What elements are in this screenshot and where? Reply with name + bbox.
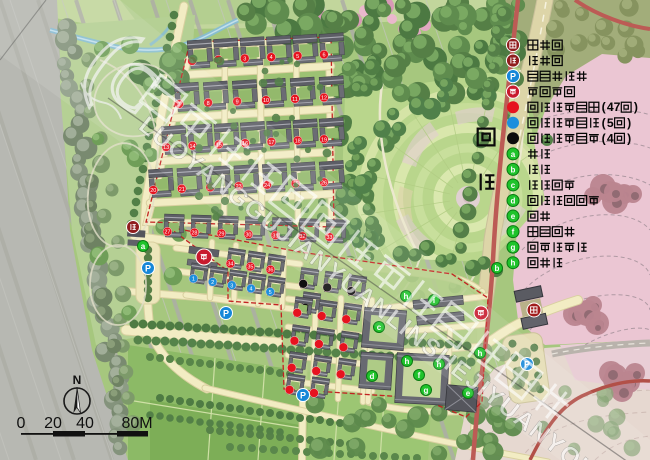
- svg-text:g: g: [511, 243, 516, 252]
- svg-text:P: P: [223, 308, 229, 318]
- svg-text:f: f: [512, 228, 515, 237]
- svg-text:b: b: [511, 165, 516, 174]
- svg-text:12: 12: [321, 96, 327, 102]
- svg-text:N: N: [73, 373, 82, 387]
- svg-text:11: 11: [292, 97, 298, 103]
- svg-text:e: e: [511, 212, 516, 221]
- svg-text:40: 40: [76, 415, 94, 432]
- svg-text:a: a: [141, 242, 146, 251]
- svg-text:h: h: [405, 357, 410, 366]
- svg-text:): ): [634, 100, 638, 114]
- svg-text:d: d: [370, 372, 375, 381]
- svg-text:0: 0: [17, 415, 26, 432]
- svg-text:1: 1: [192, 277, 195, 283]
- svg-text:5: 5: [607, 116, 614, 130]
- svg-text:27: 27: [164, 230, 170, 236]
- svg-text:f: f: [418, 371, 421, 380]
- svg-text:): ): [627, 116, 631, 130]
- svg-text:10: 10: [263, 98, 269, 104]
- svg-text:7: 7: [614, 100, 621, 114]
- svg-text:4: 4: [249, 287, 252, 293]
- svg-text:20: 20: [44, 415, 62, 432]
- svg-text:18: 18: [295, 139, 301, 145]
- svg-text:P: P: [510, 72, 516, 82]
- svg-text:34: 34: [227, 262, 233, 268]
- svg-text:d: d: [511, 197, 516, 206]
- svg-text:2: 2: [211, 280, 214, 286]
- svg-text:g: g: [424, 386, 429, 395]
- svg-text:80M: 80M: [121, 415, 152, 432]
- svg-text:29: 29: [218, 232, 224, 238]
- svg-text:5: 5: [296, 54, 299, 60]
- svg-text:4: 4: [607, 131, 614, 145]
- svg-text:36: 36: [267, 268, 273, 274]
- svg-text:): ): [627, 131, 631, 145]
- svg-text:h: h: [511, 259, 516, 268]
- svg-text:3: 3: [243, 57, 246, 63]
- svg-text:28: 28: [191, 231, 197, 237]
- svg-text:4: 4: [270, 55, 273, 61]
- svg-text:a: a: [511, 150, 516, 159]
- svg-text:5: 5: [269, 290, 272, 296]
- svg-text:c: c: [511, 181, 516, 190]
- svg-text:20: 20: [150, 188, 156, 194]
- svg-text:P: P: [145, 263, 151, 273]
- svg-text:P: P: [300, 390, 306, 400]
- svg-text:6: 6: [322, 53, 325, 59]
- svg-text:19: 19: [321, 137, 327, 143]
- svg-text:35: 35: [247, 265, 253, 271]
- svg-text:b: b: [495, 264, 500, 273]
- svg-text:3: 3: [230, 283, 233, 289]
